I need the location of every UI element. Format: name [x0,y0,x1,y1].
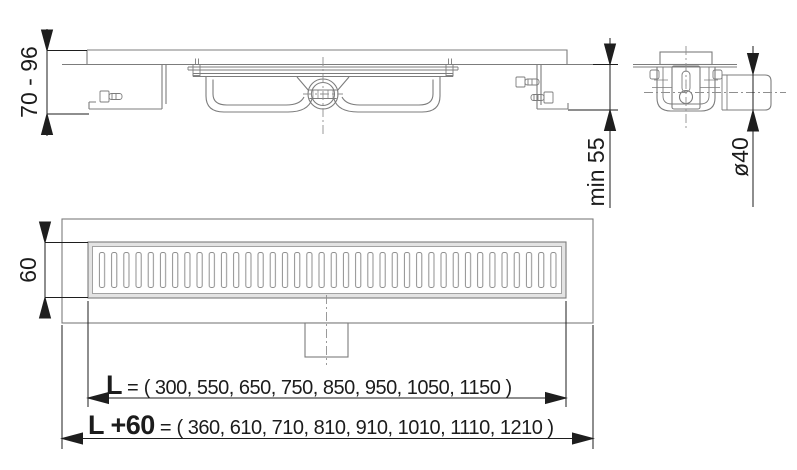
dim-length-label: L = ( 300, 550, 650, 750, 850, 950, 1050… [106,370,512,401]
length-values: ( 300, 550, 650, 750, 850, 950, 1050, 11… [144,377,512,400]
mounting-bracket-left [89,65,166,110]
dim-overall-length-label: L +60 = ( 360, 610, 710, 810, 910, 1010,… [88,410,554,441]
length-symbol: L [106,370,122,401]
mounting-bracket-right [516,65,568,110]
side-view [62,50,593,137]
end-view [633,46,786,128]
dim-height-range [42,29,90,136]
dim-height-range-label: 70 - 96 [16,22,42,142]
length-equals: = [127,377,139,400]
dim-min-depth-label: min 55 [583,112,609,232]
bracket-bolt-lower [531,92,553,103]
channel-edge-profile [62,50,593,65]
overall-length-values: ( 360, 610, 710, 810, 910, 1010, 1110, 1… [177,417,554,440]
dim-grate-width-label: 60 [15,210,41,330]
top-view [62,219,593,365]
overall-length-symbol: L +60 [88,410,155,441]
bracket-bolt-upper [516,77,539,87]
dim-pipe-diameter-label: ø40 [727,97,753,217]
grate-slots [96,252,557,288]
bracket-bolt [100,91,122,102]
technical-drawing-canvas: 70 - 96 min 55 ø40 60 L = ( 300, 550, 65… [0,0,797,470]
overall-length-equals: = [160,417,172,440]
